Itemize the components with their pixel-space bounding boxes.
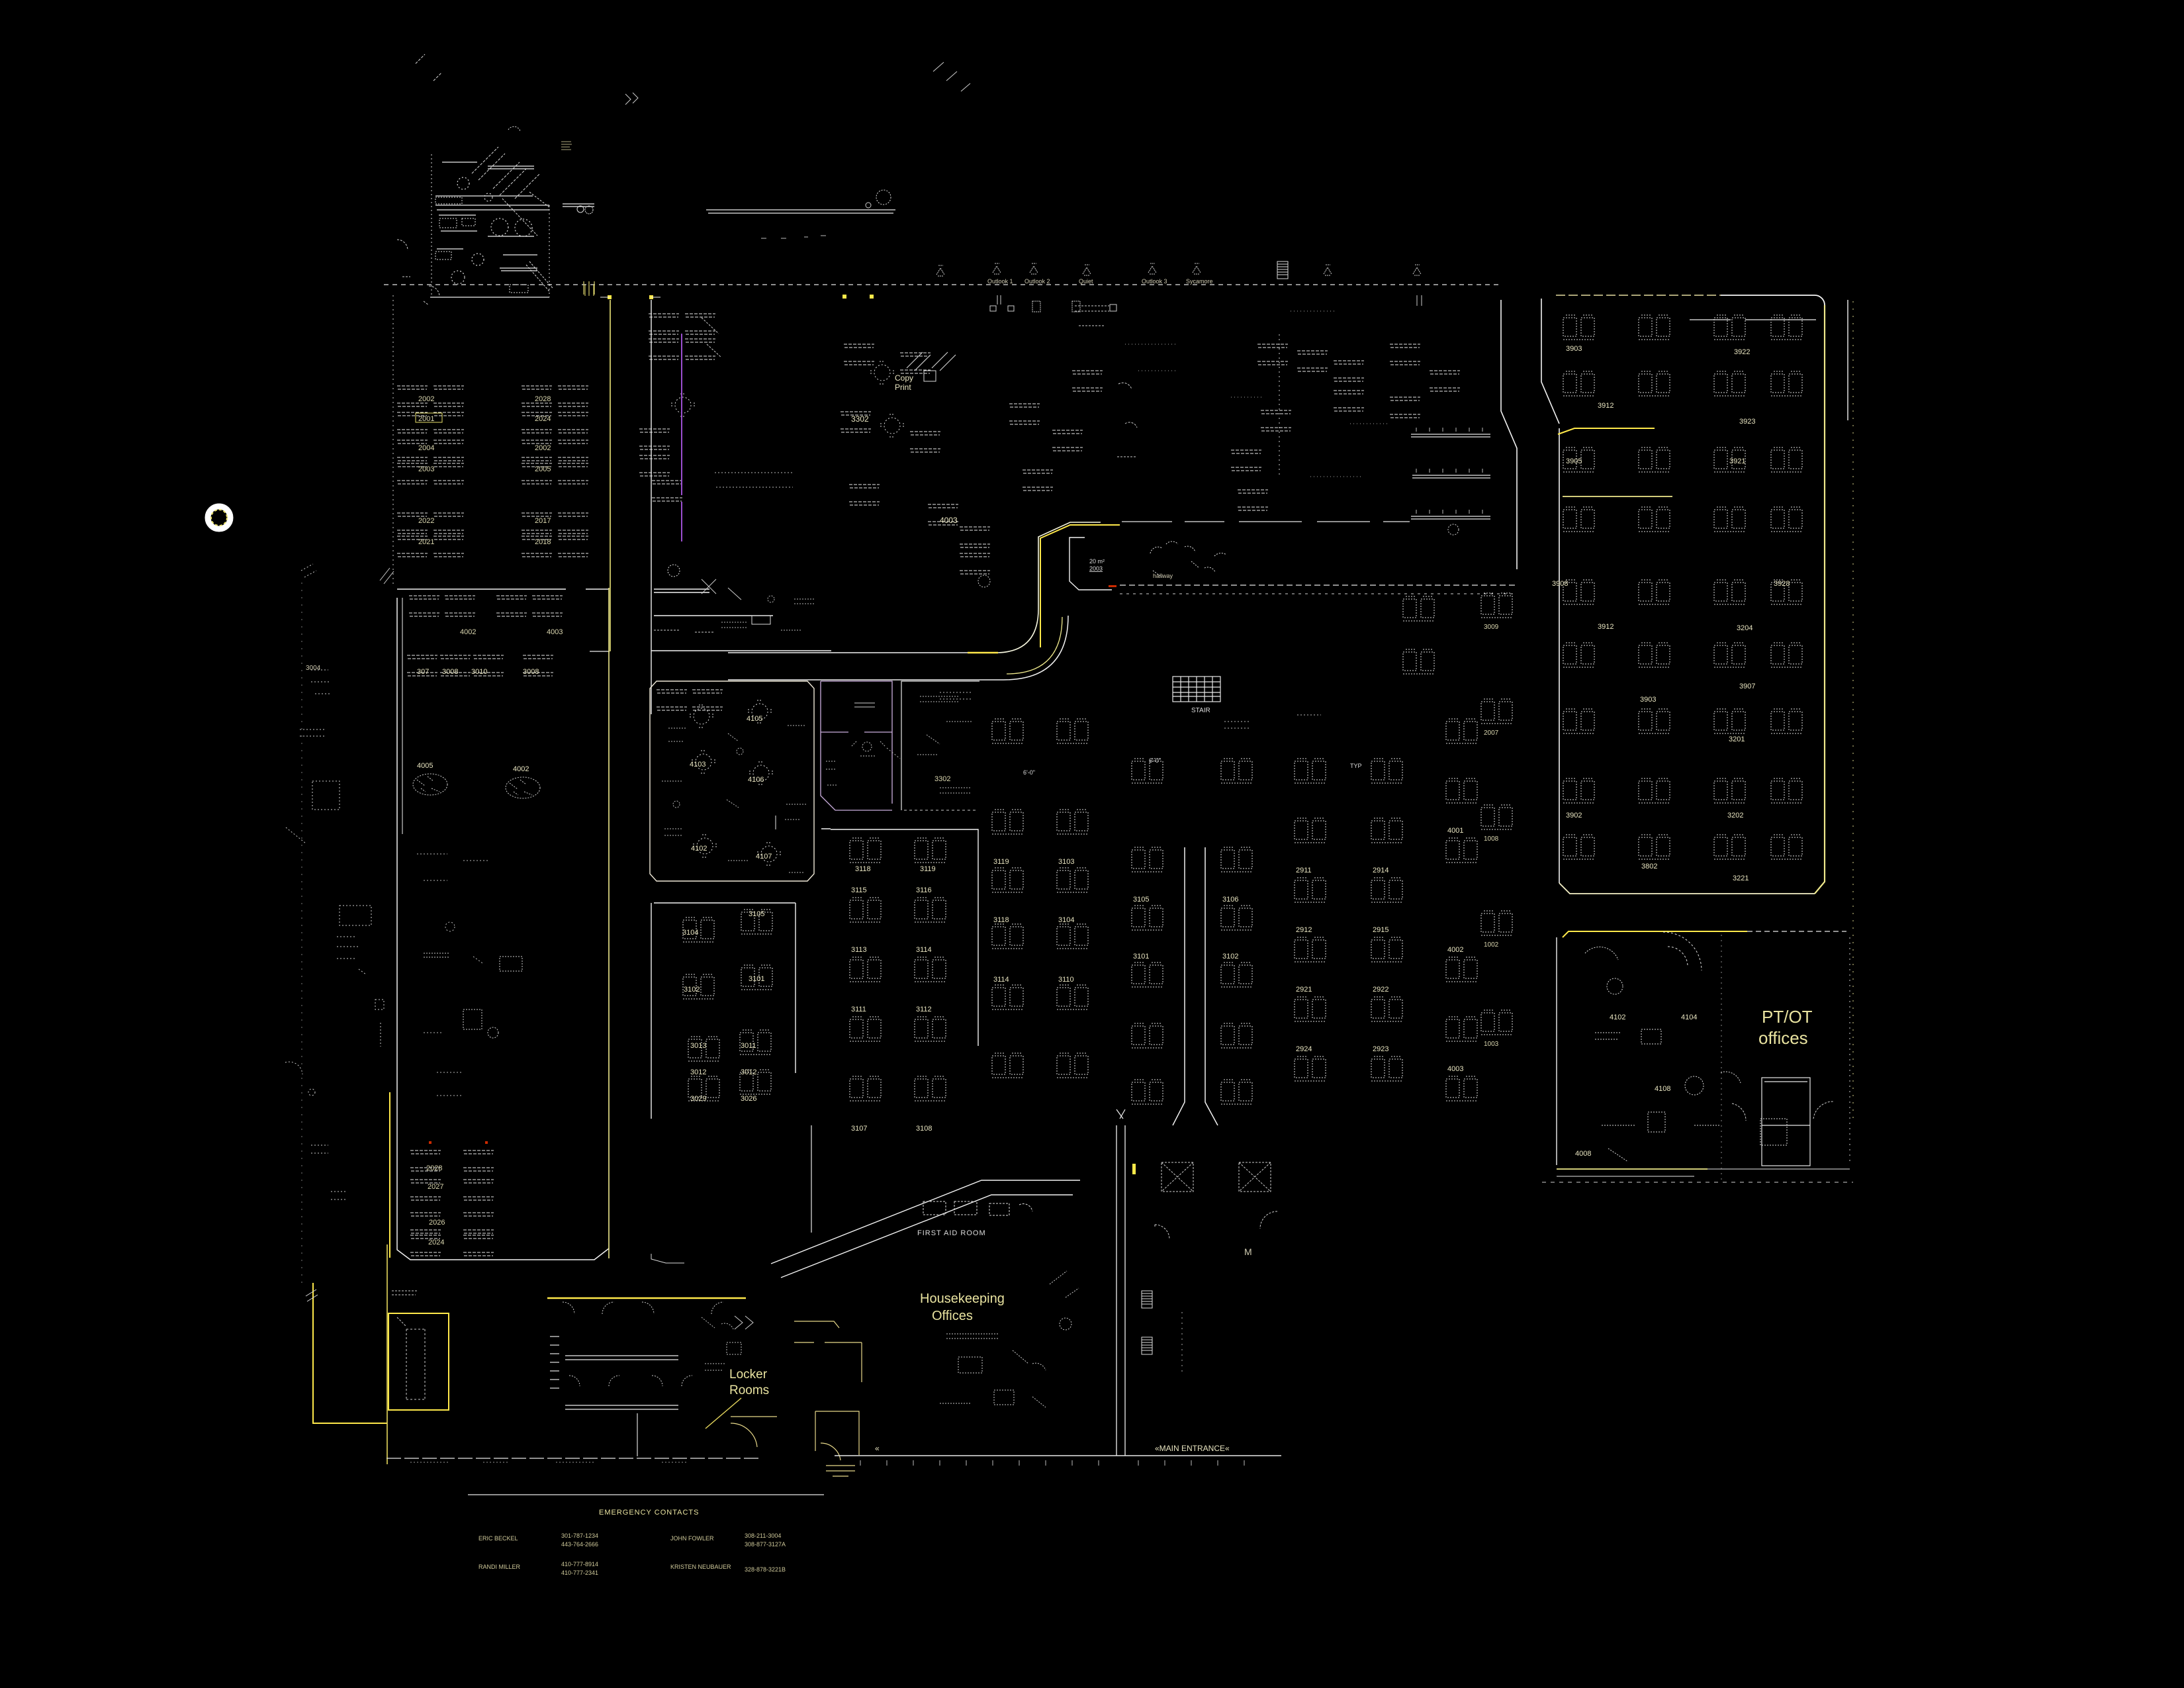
svg-text:Housekeeping: Housekeeping	[920, 1291, 1005, 1306]
svg-text:3008: 3008	[442, 668, 458, 676]
svg-text:4105: 4105	[747, 715, 762, 723]
svg-text:3010: 3010	[471, 668, 487, 676]
svg-text:6'-0": 6'-0"	[1023, 769, 1035, 776]
svg-text:3004: 3004	[306, 665, 321, 672]
svg-text:«: «	[875, 1444, 880, 1453]
svg-text:3204: 3204	[1737, 624, 1752, 632]
svg-text:3107: 3107	[851, 1125, 867, 1133]
svg-text:2922: 2922	[1373, 986, 1388, 994]
svg-text:3905: 3905	[1566, 457, 1582, 465]
svg-text:2003: 2003	[418, 465, 434, 473]
svg-text:3302: 3302	[851, 414, 869, 424]
svg-text:2912: 2912	[1296, 926, 1312, 934]
svg-text:3108: 3108	[916, 1125, 932, 1133]
svg-text:Outlook 3: Outlook 3	[1142, 278, 1167, 285]
svg-text:3119: 3119	[920, 865, 936, 873]
svg-text:4108: 4108	[1655, 1085, 1670, 1093]
svg-text:4002: 4002	[460, 628, 476, 636]
svg-text:308-877-3127A: 308-877-3127A	[745, 1541, 786, 1548]
svg-text:3011: 3011	[741, 1042, 756, 1050]
svg-text:3903: 3903	[1566, 345, 1582, 353]
svg-text:3012: 3012	[690, 1068, 706, 1076]
svg-text:4102: 4102	[691, 845, 707, 853]
svg-text:2024: 2024	[535, 415, 551, 423]
svg-text:3009: 3009	[1484, 624, 1499, 631]
svg-text:4002: 4002	[513, 765, 529, 773]
svg-text:3113: 3113	[851, 946, 867, 954]
svg-text:3802: 3802	[1641, 863, 1657, 870]
svg-text:443-764-2666: 443-764-2666	[561, 1541, 598, 1548]
svg-text:3112: 3112	[916, 1006, 932, 1013]
svg-text:3110: 3110	[1058, 976, 1074, 984]
svg-text:3115: 3115	[851, 886, 867, 894]
svg-text:4005: 4005	[417, 762, 433, 770]
svg-text:3119: 3119	[993, 858, 1009, 866]
svg-text:6'-0": 6'-0"	[1149, 757, 1161, 764]
svg-text:4001: 4001	[1447, 827, 1463, 835]
svg-text:3106: 3106	[1222, 896, 1238, 904]
svg-text:2911: 2911	[1296, 867, 1312, 874]
svg-text:3118: 3118	[993, 916, 1009, 924]
svg-text:3008: 3008	[523, 668, 539, 676]
svg-text:3921: 3921	[1729, 457, 1745, 465]
svg-text:PT/OT: PT/OT	[1762, 1007, 1813, 1027]
svg-text:3928: 3928	[1774, 580, 1790, 588]
svg-text:3101: 3101	[1133, 953, 1149, 961]
svg-text:301-787-1234: 301-787-1234	[561, 1532, 598, 1539]
svg-text:3201: 3201	[1729, 735, 1745, 743]
svg-text:1008: 1008	[1484, 835, 1499, 843]
svg-text:2004: 2004	[418, 444, 434, 452]
svg-text:4003: 4003	[1447, 1065, 1463, 1073]
svg-text:3302: 3302	[934, 775, 950, 783]
svg-text:Copy: Copy	[895, 373, 913, 383]
svg-text:M: M	[1244, 1246, 1252, 1257]
svg-text:Outlook 1: Outlook 1	[987, 278, 1013, 285]
svg-text:2026: 2026	[429, 1219, 445, 1227]
svg-text:4003: 4003	[940, 516, 958, 525]
svg-text:hallway: hallway	[1153, 573, 1173, 579]
svg-text:410-777-2341: 410-777-2341	[561, 1570, 598, 1576]
svg-text:20 m²: 20 m²	[1089, 558, 1105, 565]
svg-text:1002: 1002	[1484, 941, 1499, 949]
svg-text:3912: 3912	[1598, 402, 1614, 410]
svg-text:Locker: Locker	[729, 1368, 768, 1382]
svg-text:1003: 1003	[1484, 1041, 1499, 1048]
svg-text:3907: 3907	[1739, 682, 1755, 690]
svg-text:2028: 2028	[426, 1164, 442, 1172]
svg-text:RANDI MILLER: RANDI MILLER	[478, 1564, 521, 1570]
svg-text:TYP: TYP	[1350, 763, 1362, 769]
svg-text:«MAIN ENTRANCE«: «MAIN ENTRANCE«	[1155, 1444, 1230, 1453]
svg-text:3903: 3903	[1640, 696, 1656, 704]
svg-text:2024: 2024	[428, 1239, 444, 1246]
svg-text:4003: 4003	[547, 628, 563, 636]
svg-text:4002: 4002	[1447, 946, 1463, 954]
svg-text:2027: 2027	[428, 1183, 443, 1191]
svg-text:2003: 2003	[1089, 565, 1103, 572]
svg-text:3114: 3114	[993, 976, 1009, 984]
svg-text:328-878-3221B: 328-878-3221B	[745, 1566, 786, 1573]
svg-text:3202: 3202	[1727, 812, 1743, 820]
svg-text:2028: 2028	[535, 395, 551, 403]
svg-text:2007: 2007	[1484, 729, 1499, 737]
svg-text:3029: 3029	[690, 1095, 706, 1103]
svg-text:4104: 4104	[1681, 1013, 1697, 1021]
svg-text:2002: 2002	[535, 444, 551, 452]
svg-text:3221: 3221	[1733, 874, 1749, 882]
svg-text:2915: 2915	[1373, 926, 1388, 934]
svg-text:3908: 3908	[1552, 580, 1568, 588]
svg-text:2005: 2005	[535, 465, 551, 473]
svg-text:Quiet: Quiet	[1079, 278, 1093, 285]
svg-text:3104: 3104	[682, 929, 698, 937]
svg-text:FIRST AID ROOM: FIRST AID ROOM	[917, 1229, 986, 1237]
svg-text:STAIR: STAIR	[1191, 707, 1210, 714]
svg-text:2021: 2021	[418, 538, 434, 546]
svg-text:3102: 3102	[1222, 953, 1238, 961]
svg-text:4103: 4103	[690, 761, 705, 769]
svg-text:3912: 3912	[1598, 623, 1614, 631]
svg-text:2002: 2002	[418, 395, 434, 403]
svg-text:4107: 4107	[756, 853, 772, 861]
svg-text:Rooms: Rooms	[729, 1383, 769, 1397]
svg-text:KRISTEN NEUBAUER: KRISTEN NEUBAUER	[670, 1564, 731, 1570]
svg-text:3105: 3105	[749, 910, 764, 918]
svg-text:2018: 2018	[535, 538, 551, 546]
svg-text:Print: Print	[895, 383, 911, 392]
svg-text:Sycamore: Sycamore	[1186, 278, 1213, 285]
svg-text:3103: 3103	[1058, 858, 1074, 866]
svg-text:EMERGENCY CONTACTS: EMERGENCY CONTACTS	[599, 1509, 699, 1517]
svg-text:4008: 4008	[1575, 1150, 1591, 1158]
svg-text:4102: 4102	[1610, 1013, 1625, 1021]
svg-text:3116: 3116	[916, 886, 932, 894]
svg-text:3012: 3012	[741, 1068, 756, 1076]
svg-text:3101: 3101	[749, 975, 764, 983]
svg-text:2017: 2017	[535, 517, 551, 525]
svg-text:4106: 4106	[748, 776, 764, 784]
svg-text:2923: 2923	[1373, 1045, 1388, 1053]
svg-text:3111: 3111	[851, 1006, 866, 1013]
svg-text:3026: 3026	[741, 1095, 756, 1103]
svg-text:2001: 2001	[418, 415, 434, 423]
svg-text:3104: 3104	[1058, 916, 1074, 924]
svg-text:Outlook 2: Outlook 2	[1024, 278, 1050, 285]
svg-text:JOHN FOWLER: JOHN FOWLER	[670, 1535, 714, 1542]
svg-text:ERIC BECKEL: ERIC BECKEL	[478, 1535, 518, 1542]
svg-text:3102: 3102	[684, 986, 700, 994]
svg-text:3013: 3013	[690, 1042, 706, 1050]
svg-text:3922: 3922	[1734, 348, 1750, 356]
svg-text:3114: 3114	[916, 946, 932, 954]
svg-text:3902: 3902	[1566, 812, 1582, 820]
svg-text:3923: 3923	[1739, 418, 1755, 426]
svg-text:2914: 2914	[1373, 867, 1388, 874]
svg-text:307: 307	[417, 668, 429, 676]
svg-text:2022: 2022	[418, 517, 434, 525]
svg-text:3105: 3105	[1133, 896, 1149, 904]
svg-text:2921: 2921	[1296, 986, 1312, 994]
svg-text:308-211-3004: 308-211-3004	[745, 1532, 781, 1539]
svg-text:Offices: Offices	[932, 1309, 973, 1323]
svg-text:2924: 2924	[1296, 1045, 1312, 1053]
svg-text:410-777-8914: 410-777-8914	[561, 1561, 598, 1568]
svg-text:offices: offices	[1758, 1028, 1808, 1048]
svg-text:3118: 3118	[855, 865, 871, 873]
